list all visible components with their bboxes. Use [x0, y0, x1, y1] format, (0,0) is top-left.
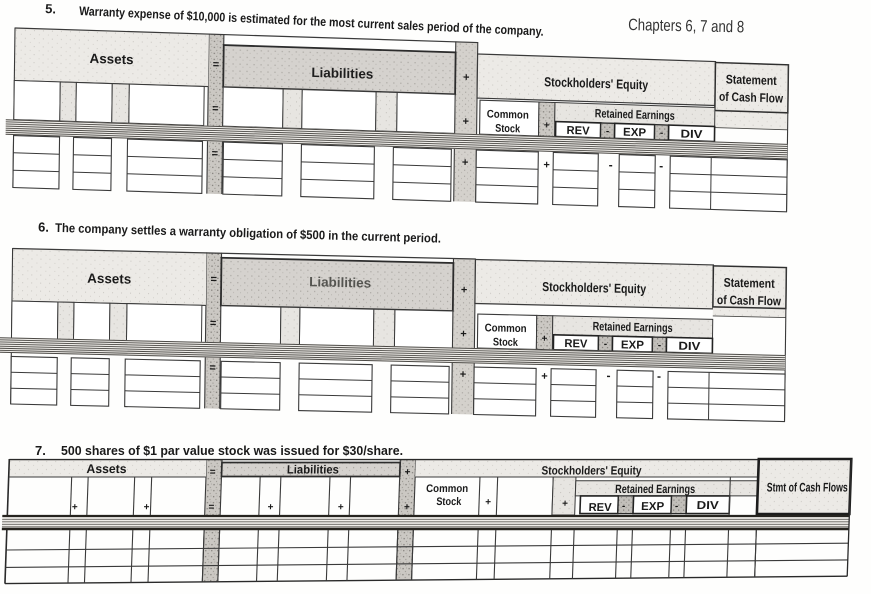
svg-text:+: +: [562, 499, 568, 510]
svg-text:+: +: [404, 467, 410, 478]
svg-text:-: -: [606, 369, 610, 383]
svg-text:Stmt of Cash Flows: Stmt of Cash Flows: [767, 481, 849, 495]
svg-text:Assets: Assets: [89, 51, 133, 67]
svg-text:=: =: [209, 362, 216, 374]
svg-text:500 shares of $1 par value st: 500 shares of $1 par value stock was iss…: [61, 444, 403, 458]
svg-text:+: +: [404, 502, 410, 513]
svg-text:+: +: [338, 502, 344, 513]
svg-text:Stockholders' Equity: Stockholders' Equity: [542, 279, 647, 296]
svg-text:-: -: [658, 340, 661, 351]
svg-text:Retained Earnings: Retained Earnings: [615, 482, 696, 496]
svg-text:-: -: [622, 501, 626, 512]
svg-text:6.: 6.: [38, 219, 49, 234]
svg-text:Stock: Stock: [493, 336, 519, 349]
svg-text:7.: 7.: [35, 443, 46, 458]
svg-text:=: =: [210, 273, 217, 285]
svg-text:Chapters 6, 7 and 8: Chapters 6, 7 and 8: [628, 16, 744, 36]
svg-text:Liabilities: Liabilities: [287, 463, 340, 477]
svg-text:-: -: [660, 128, 663, 139]
svg-text:=: =: [212, 148, 219, 160]
svg-text:-: -: [609, 158, 613, 172]
svg-text:+: +: [460, 369, 467, 381]
svg-text:EXP: EXP: [623, 127, 646, 140]
svg-text:EXP: EXP: [641, 501, 665, 513]
svg-text:-: -: [604, 339, 607, 350]
svg-text:+: +: [542, 334, 548, 345]
svg-text:+: +: [541, 371, 548, 383]
svg-text:-: -: [606, 126, 609, 137]
svg-text:+: +: [462, 116, 469, 128]
svg-text:=: =: [208, 502, 214, 513]
svg-text:Common: Common: [485, 322, 527, 335]
svg-text:5.: 5.: [45, 1, 57, 16]
svg-text:-: -: [657, 369, 661, 383]
svg-text:+: +: [460, 328, 467, 340]
svg-text:Assets: Assets: [87, 271, 131, 287]
svg-text:Liabilities: Liabilities: [309, 274, 371, 290]
svg-text:Common: Common: [487, 108, 529, 121]
svg-text:=: =: [210, 467, 216, 478]
svg-text:-: -: [675, 501, 679, 512]
svg-text:=: =: [212, 103, 219, 115]
svg-text:+: +: [485, 497, 491, 508]
svg-text:Stockholders' Equity: Stockholders' Equity: [541, 464, 642, 478]
svg-text:+: +: [463, 72, 470, 84]
svg-text:Assets: Assets: [86, 462, 127, 476]
svg-text:Common: Common: [426, 483, 469, 495]
svg-text:Statement: Statement: [726, 72, 778, 88]
svg-text:DIV: DIV: [680, 128, 703, 141]
svg-text:DIV: DIV: [678, 341, 701, 354]
svg-text:+: +: [72, 502, 78, 513]
svg-text:of Cash Flow: of Cash Flow: [719, 90, 783, 106]
svg-text:Stock: Stock: [495, 123, 521, 136]
svg-text:=: =: [213, 59, 220, 71]
svg-text:+: +: [143, 502, 149, 513]
svg-text:Statement: Statement: [724, 276, 776, 291]
svg-text:of Cash Flow: of Cash Flow: [717, 293, 781, 308]
svg-text:REV: REV: [588, 502, 612, 514]
svg-text:Retained Earnings: Retained Earnings: [593, 319, 673, 335]
svg-text:+: +: [461, 284, 468, 296]
svg-text:DIV: DIV: [696, 500, 719, 512]
svg-text:REV: REV: [564, 338, 587, 351]
svg-text:Liabilities: Liabilities: [311, 65, 373, 82]
svg-text:Stock: Stock: [436, 496, 462, 508]
svg-text:+: +: [543, 159, 550, 171]
svg-text:+: +: [544, 120, 550, 131]
svg-text:-: -: [659, 159, 663, 173]
svg-text:+: +: [462, 157, 469, 169]
svg-text:+: +: [267, 502, 273, 513]
svg-text:=: =: [210, 317, 217, 329]
svg-text:REV: REV: [567, 125, 590, 138]
svg-text:Retained Earnings: Retained Earnings: [595, 106, 675, 123]
svg-text:EXP: EXP: [621, 339, 644, 352]
